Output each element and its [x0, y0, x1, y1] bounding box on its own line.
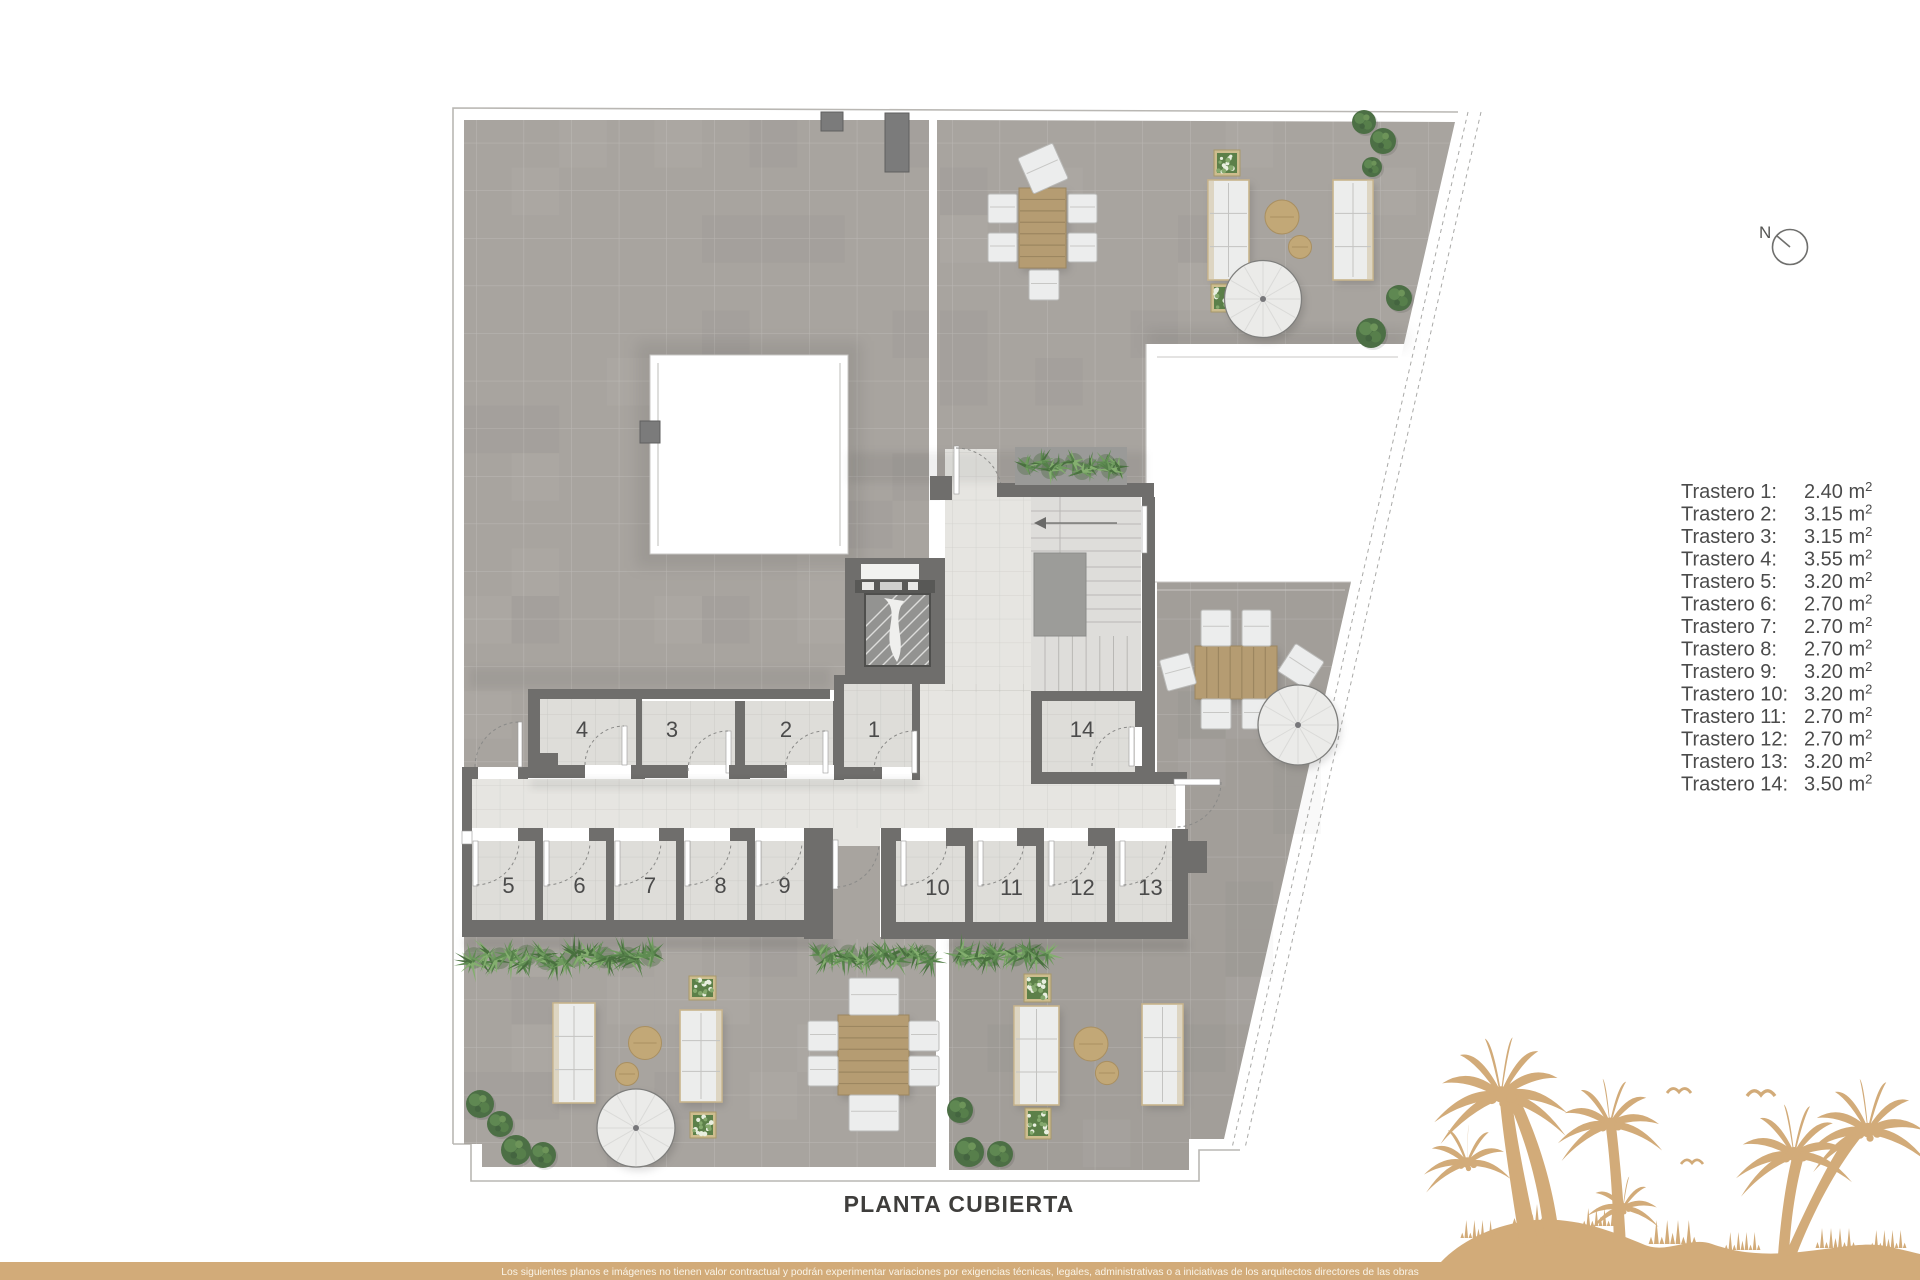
svg-text:1: 1: [868, 717, 880, 742]
svg-text:3.15 m2: 3.15 m2: [1804, 502, 1872, 526]
svg-text:2: 2: [780, 717, 792, 742]
svg-text:3: 3: [666, 717, 678, 742]
svg-text:3.20 m2: 3.20 m2: [1804, 659, 1872, 683]
svg-text:3.15 m2: 3.15 m2: [1804, 524, 1872, 548]
svg-text:Trastero 10:: Trastero 10:: [1681, 684, 1788, 706]
svg-text:Los siguientes planos e imágen: Los siguientes planos e imágenes no tien…: [501, 1267, 1419, 1278]
svg-text:7: 7: [644, 873, 656, 898]
svg-text:Trastero 2:: Trastero 2:: [1681, 504, 1777, 526]
svg-text:14: 14: [1070, 717, 1094, 742]
svg-text:Trastero 5:: Trastero 5:: [1681, 571, 1777, 593]
svg-text:3.50 m2: 3.50 m2: [1804, 772, 1872, 796]
svg-text:Trastero 4:: Trastero 4:: [1681, 549, 1777, 571]
svg-text:Trastero 9:: Trastero 9:: [1681, 661, 1777, 683]
svg-text:4: 4: [576, 717, 588, 742]
svg-text:13: 13: [1138, 875, 1162, 900]
svg-text:N: N: [1759, 223, 1771, 242]
svg-text:Trastero 11:: Trastero 11:: [1681, 706, 1787, 728]
svg-text:2.70 m2: 2.70 m2: [1804, 592, 1872, 616]
svg-text:Trastero 3:: Trastero 3:: [1681, 526, 1777, 548]
svg-text:5: 5: [502, 873, 514, 898]
svg-text:3.55 m2: 3.55 m2: [1804, 547, 1872, 571]
svg-text:2.70 m2: 2.70 m2: [1804, 704, 1872, 728]
svg-text:6: 6: [573, 873, 585, 898]
svg-text:2.40 m2: 2.40 m2: [1804, 479, 1872, 503]
svg-text:12: 12: [1070, 875, 1094, 900]
svg-text:11: 11: [1000, 875, 1023, 900]
svg-text:10: 10: [925, 875, 949, 900]
svg-text:3.20 m2: 3.20 m2: [1804, 569, 1872, 593]
svg-text:3.20 m2: 3.20 m2: [1804, 682, 1872, 706]
svg-text:Trastero 13:: Trastero 13:: [1681, 751, 1788, 773]
svg-text:3.20 m2: 3.20 m2: [1804, 749, 1872, 773]
svg-text:2.70 m2: 2.70 m2: [1804, 614, 1872, 638]
svg-text:Trastero 12:: Trastero 12:: [1681, 729, 1788, 751]
svg-text:2.70 m2: 2.70 m2: [1804, 727, 1872, 751]
svg-text:2.70 m2: 2.70 m2: [1804, 637, 1872, 661]
svg-text:8: 8: [714, 873, 726, 898]
svg-text:Trastero 14:: Trastero 14:: [1681, 774, 1788, 796]
svg-text:Trastero 8:: Trastero 8:: [1681, 639, 1777, 661]
svg-text:Trastero 1:: Trastero 1:: [1681, 481, 1777, 503]
svg-text:Trastero 6:: Trastero 6:: [1681, 594, 1777, 616]
svg-text:PLANTA CUBIERTA: PLANTA CUBIERTA: [844, 1191, 1075, 1217]
svg-text:Trastero 7:: Trastero 7:: [1681, 616, 1777, 638]
